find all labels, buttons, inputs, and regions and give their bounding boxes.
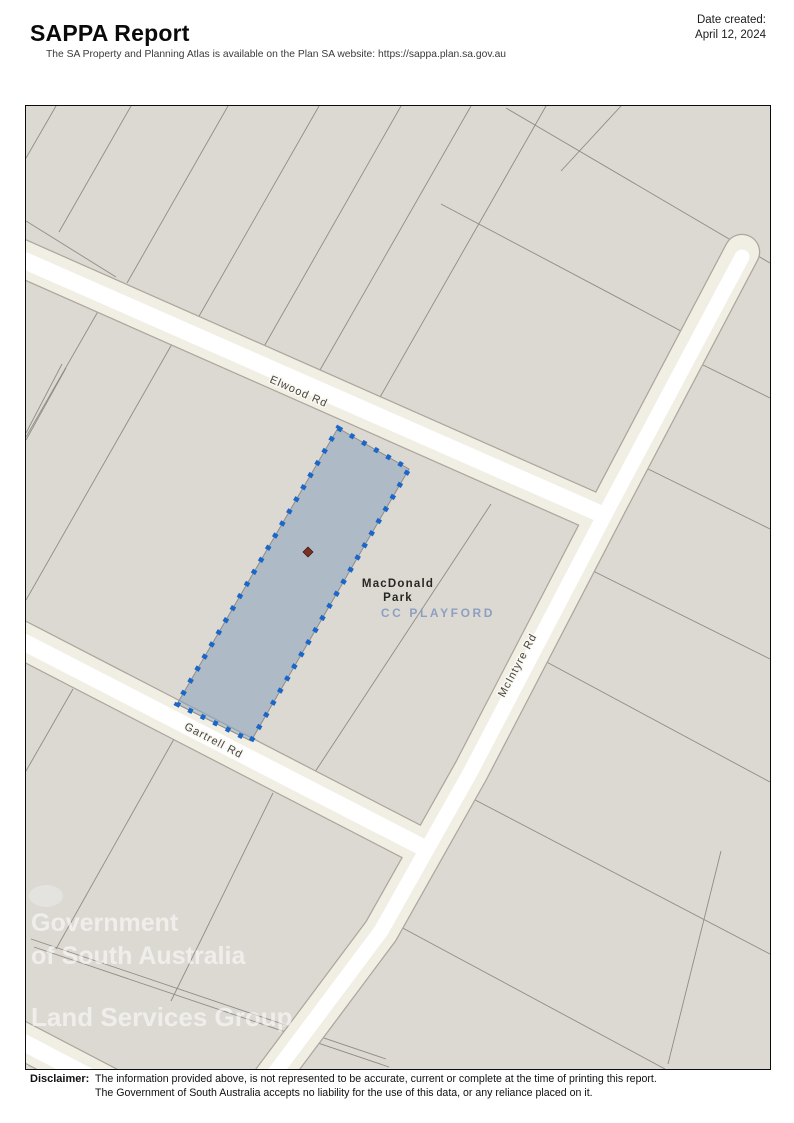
sappa-report-page: SAPPA Report The SA Property and Plannin… <box>0 0 794 1123</box>
map-canvas: Government of South Australia Land Servi… <box>26 106 770 1069</box>
date-created-label: Date created: <box>695 13 766 28</box>
disclaimer-line1: The information provided above, is not r… <box>95 1073 755 1087</box>
disclaimer-label: Disclaimer: <box>30 1073 89 1085</box>
suburb-label-line1: MacDonald <box>362 578 434 590</box>
watermark-line3: Land Services Group <box>31 1002 293 1032</box>
page-subtitle: The SA Property and Planning Atlas is av… <box>46 49 506 60</box>
suburb-label-line2: Park <box>383 592 413 604</box>
watermark-line1: Government <box>31 909 179 937</box>
watermark-line2: of South Australia <box>31 942 246 970</box>
map-viewport: Government of South Australia Land Servi… <box>25 105 771 1070</box>
disclaimer-line2: The Government of South Australia accept… <box>95 1087 755 1101</box>
page-title: SAPPA Report <box>30 20 190 47</box>
watermark-logo <box>29 885 63 907</box>
date-created-block: Date created: April 12, 2024 <box>695 13 766 42</box>
date-created-value: April 12, 2024 <box>695 28 766 43</box>
disclaimer-text: The information provided above, is not r… <box>95 1073 755 1100</box>
council-area-label: CC PLAYFORD <box>381 606 495 620</box>
